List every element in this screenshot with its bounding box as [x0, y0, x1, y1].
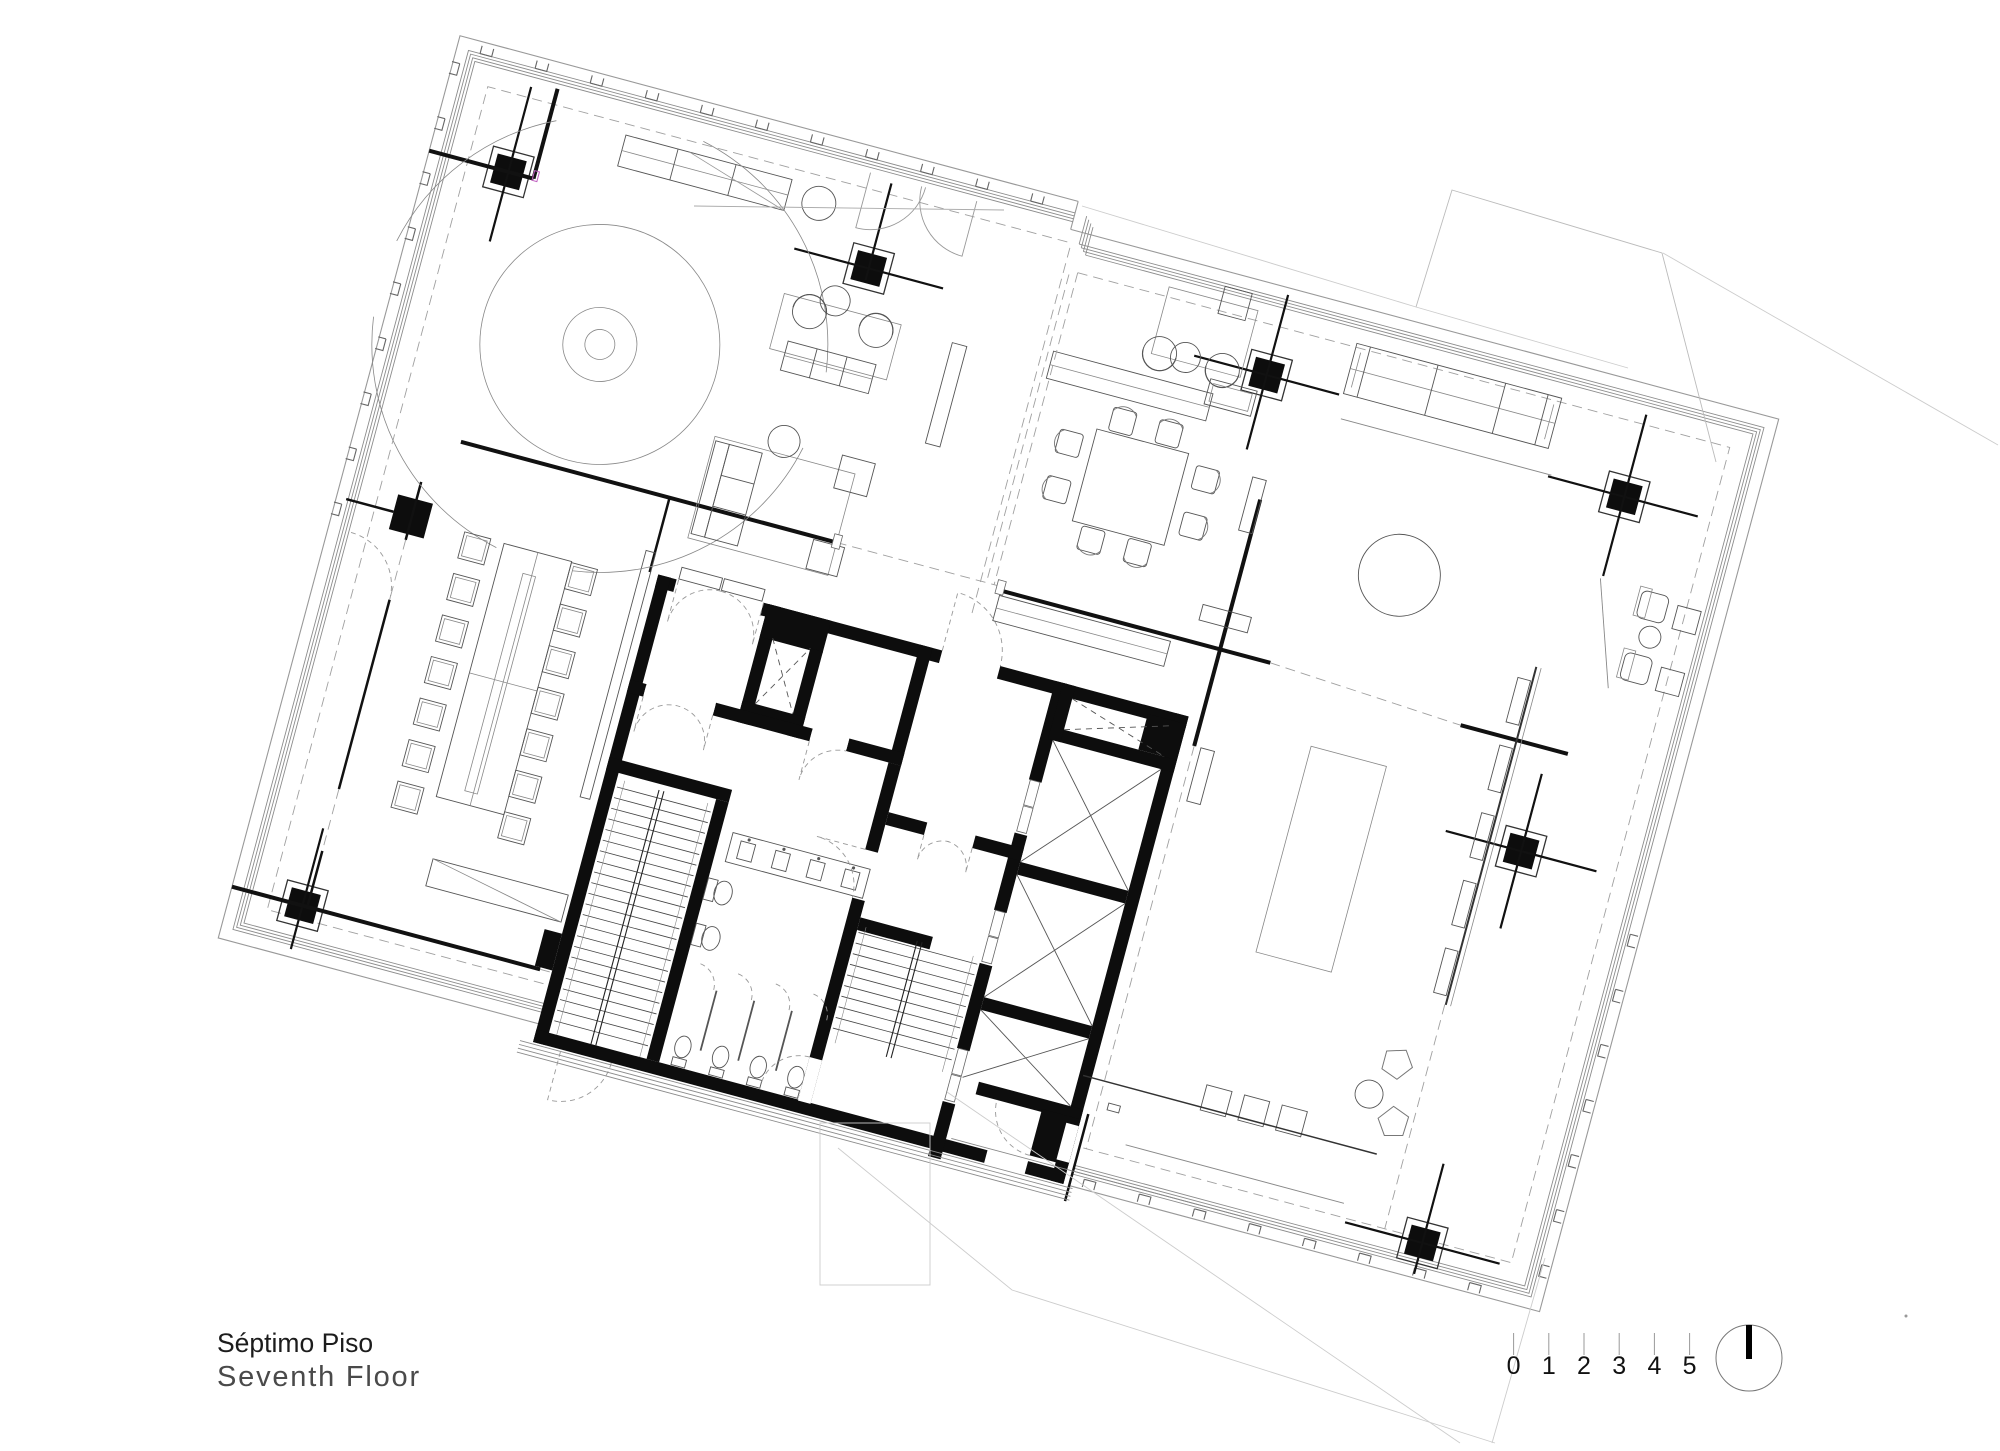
svg-text:Séptimo Piso: Séptimo Piso [217, 1328, 373, 1358]
svg-text:3: 3 [1612, 1352, 1626, 1380]
svg-text:1: 1 [1542, 1352, 1556, 1380]
svg-text:2: 2 [1577, 1352, 1591, 1380]
svg-text:5: 5 [1683, 1352, 1697, 1380]
svg-text:4: 4 [1647, 1352, 1661, 1380]
svg-text:Seventh Floor: Seventh Floor [217, 1361, 421, 1393]
svg-text:0: 0 [1507, 1352, 1521, 1380]
